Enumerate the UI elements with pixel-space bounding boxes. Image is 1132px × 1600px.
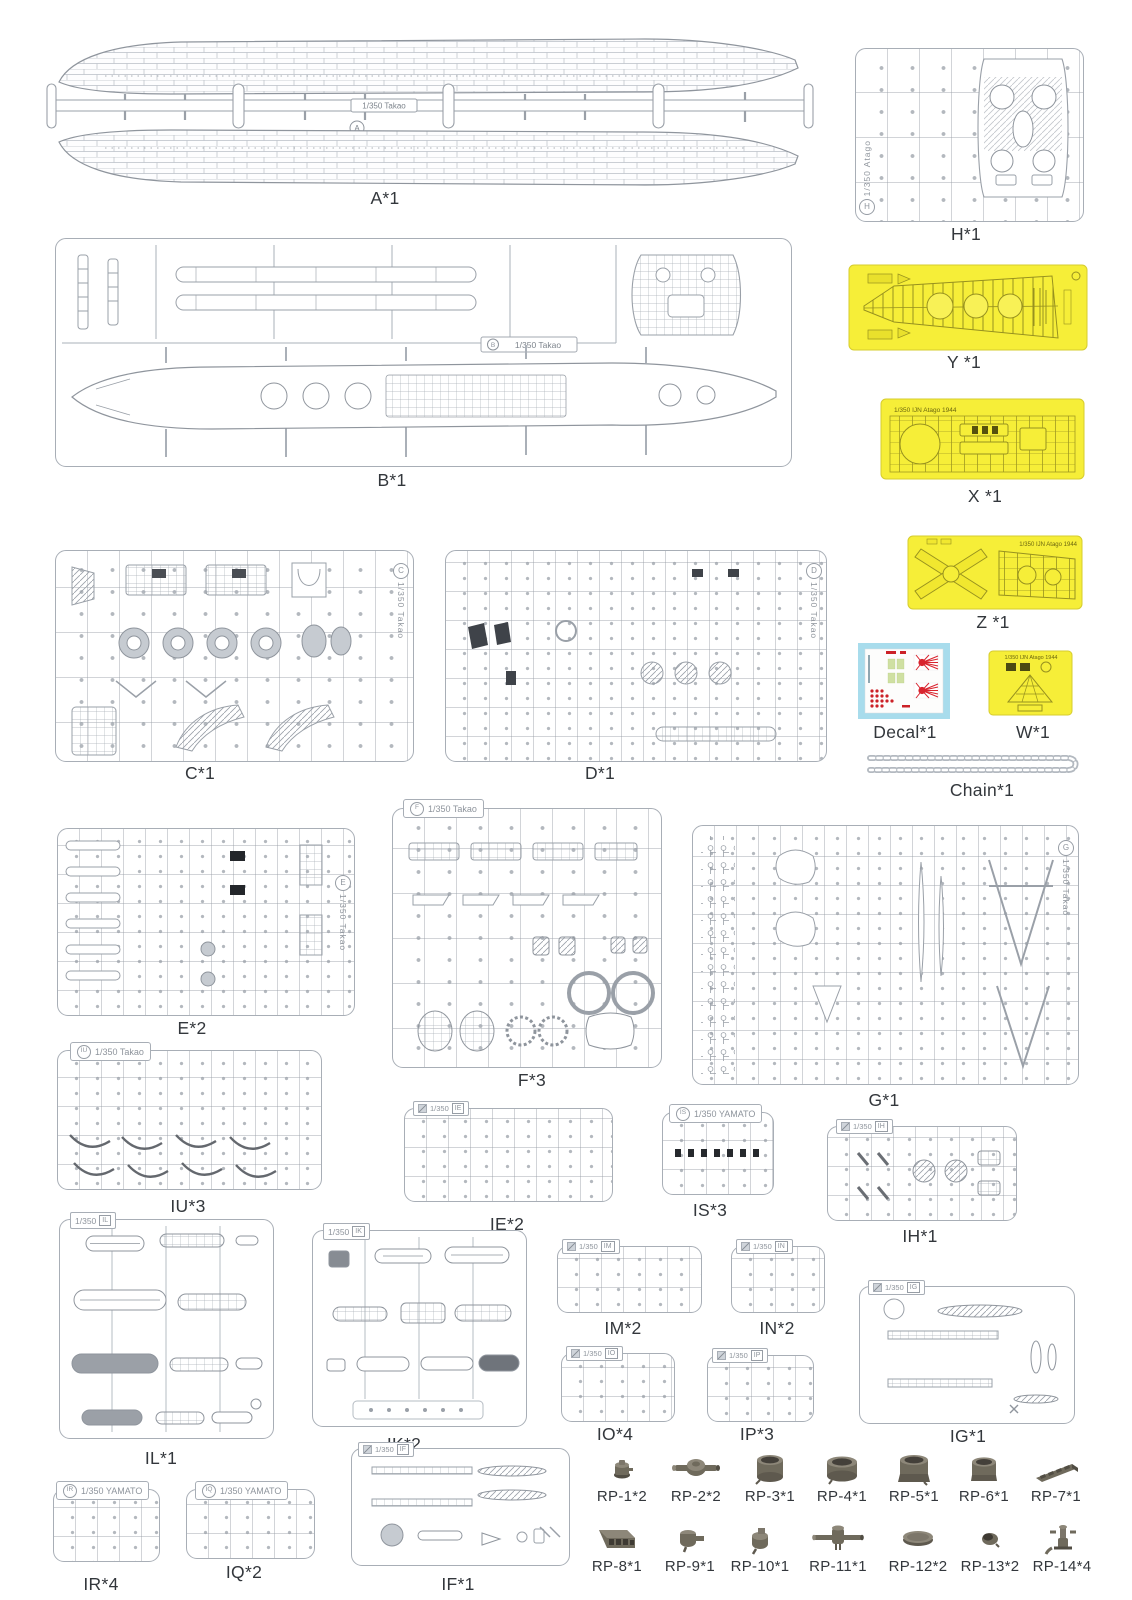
- pe-x-label: X *1: [968, 486, 1002, 507]
- sprue-h-label: H*1: [951, 224, 981, 245]
- sprue-if-label: IF*1: [441, 1574, 474, 1595]
- rp-part-1: [594, 1448, 650, 1488]
- rp-label-12: RP-12*2: [889, 1558, 948, 1575]
- pe-x-header: 1/350 IJN Atago 1944: [894, 407, 957, 414]
- rp-part-7: [1028, 1448, 1084, 1488]
- rp-part-13: [962, 1518, 1018, 1558]
- sprue-io: 1/350 IO: [561, 1353, 675, 1422]
- sprue-g: G 1/350 Takao: [692, 825, 1079, 1085]
- sprue-il: 1/350 IL: [59, 1219, 274, 1439]
- sprue-ih-tag: 1/350 IH: [836, 1119, 893, 1134]
- sprue-ih-drawing: [828, 1127, 1016, 1220]
- sprue-e-badge: E: [335, 875, 351, 891]
- sprue-if-tag: 1/350 IF: [358, 1442, 414, 1457]
- sprue-b-label: B*1: [377, 470, 406, 491]
- sprue-c-tag: C 1/350 Takao: [393, 563, 409, 639]
- sprue-ir: IR 1/350 YAMATO: [53, 1489, 160, 1562]
- sprue-c-drawing: [56, 551, 413, 761]
- pe-z-header: 1/350 IJN Atago 1944: [1019, 542, 1077, 548]
- rp-part-12: [890, 1518, 946, 1558]
- sprue-e-tag: E 1/350 Takao: [335, 875, 351, 951]
- sprue-ir-tag: IR 1/350 YAMATO: [56, 1481, 149, 1500]
- sprue-e-drawing: [58, 829, 354, 1015]
- sprue-h: 1/350 Atago H: [855, 48, 1084, 222]
- sprue-iq: IQ 1/350 YAMATO: [186, 1489, 315, 1559]
- sprue-is-drawing: [663, 1113, 773, 1194]
- sprue-ih: 1/350 IH: [827, 1126, 1017, 1221]
- sprue-h-scale-text: 1/350 Atago: [862, 140, 872, 196]
- sprue-d: D 1/350 Takao: [445, 550, 827, 762]
- sprue-in: 1/350 IN: [731, 1246, 825, 1313]
- sprue-iq-scale-text: 1/350 YAMATO: [220, 1486, 281, 1496]
- sprue-ip-label: IP*3: [740, 1424, 774, 1445]
- sprue-is-badge: IS: [676, 1107, 690, 1121]
- sprue-iu-badge: IU: [77, 1045, 91, 1059]
- sprue-in-label: IN*2: [759, 1318, 794, 1339]
- rp-label-9: RP-9*1: [665, 1558, 715, 1575]
- rp-part-3: [742, 1448, 798, 1488]
- pencil-chip-icon: [418, 1104, 427, 1113]
- sprue-a-scale-text: 1/350 Takao: [362, 102, 406, 111]
- rp-label-3: RP-3*1: [745, 1488, 795, 1505]
- sprue-b: B 1/350 Takao: [55, 238, 792, 467]
- sprue-h-tag: 1/350 Atago H: [859, 140, 875, 215]
- sprue-is-tag: IS 1/350 YAMATO: [669, 1104, 762, 1123]
- rp-part-5: [886, 1448, 942, 1488]
- sprue-h-drawing: [856, 49, 1083, 221]
- sprue-ie: 1/350 IE: [404, 1108, 613, 1202]
- sprue-ik-tag: 1/350 IK: [323, 1223, 370, 1240]
- rp-part-9: [662, 1518, 718, 1558]
- sprue-b-badge-text: B: [491, 342, 495, 349]
- sprue-io-badge: IO: [605, 1348, 618, 1359]
- sprue-f-scale-text: 1/350 Takao: [428, 804, 477, 814]
- sprue-ih-badge: IH: [875, 1121, 888, 1132]
- sprue-g-drawing: [693, 826, 1078, 1084]
- sprue-im-label: IM*2: [604, 1318, 641, 1339]
- sprue-ie-tag: 1/350 IE: [413, 1101, 469, 1116]
- sprue-if-scale-text: 1/350: [375, 1445, 394, 1454]
- rp-part-11: [810, 1518, 866, 1558]
- sprue-ir-label: IR*4: [83, 1574, 118, 1595]
- pencil-chip-icon: [571, 1349, 580, 1358]
- sprue-il-tag: 1/350 IL: [70, 1212, 116, 1229]
- sprue-iq-badge: IQ: [202, 1484, 216, 1498]
- sprue-iq-label: IQ*2: [226, 1562, 262, 1583]
- rp-label-5: RP-5*1: [889, 1488, 939, 1505]
- instruction-sheet-page: 1/350 Takao A A*1 1/350 Atago H H*1 Y *1: [0, 0, 1132, 1600]
- sprue-c: C 1/350 Takao: [55, 550, 414, 762]
- sprue-il-badge: IL: [99, 1215, 111, 1226]
- pe-y-label: Y *1: [947, 352, 981, 373]
- sprue-is-scale-text: 1/350 YAMATO: [694, 1109, 755, 1119]
- chain-drawing: [862, 750, 1088, 778]
- sprue-g-tag: G 1/350 Takao: [1058, 840, 1074, 916]
- rp-part-6: [956, 1448, 1012, 1488]
- pencil-chip-icon: [841, 1122, 850, 1131]
- sprue-iq-tag: IQ 1/350 YAMATO: [195, 1481, 288, 1500]
- sprue-is: IS 1/350 YAMATO: [662, 1112, 774, 1195]
- sprue-im-badge: IM: [601, 1241, 615, 1252]
- pe-sheet-y: [848, 264, 1088, 351]
- rp-part-14: [1034, 1518, 1090, 1558]
- sprue-iu: IU 1/350 Takao: [57, 1050, 322, 1190]
- sprue-ih-scale-text: 1/350: [853, 1122, 872, 1131]
- sprue-if-badge: IF: [397, 1444, 409, 1455]
- sprue-ie-scale-text: 1/350: [430, 1104, 449, 1113]
- sprue-c-badge: C: [393, 563, 409, 579]
- rp-part-8: [589, 1518, 645, 1558]
- sprue-ik-badge: IK: [352, 1226, 365, 1237]
- sprue-ig-drawing: [860, 1287, 1074, 1423]
- sprue-g-label: G*1: [868, 1090, 899, 1111]
- sprue-im-tag: 1/350 IM: [562, 1239, 620, 1254]
- sprue-f: F 1/350 Takao: [392, 808, 662, 1068]
- pe-w-label: W*1: [1016, 722, 1050, 743]
- sprue-ip-badge: IP: [751, 1350, 764, 1361]
- sprue-a-drawing: 1/350 Takao A: [45, 36, 815, 188]
- pencil-chip-icon: [873, 1283, 882, 1292]
- sprue-if: 1/350 IF: [351, 1448, 570, 1566]
- sprue-il-scale-text: 1/350: [75, 1216, 96, 1226]
- decal-label: Decal*1: [873, 722, 936, 743]
- chain-label: Chain*1: [950, 780, 1014, 801]
- sprue-ig: 1/350 IG: [859, 1286, 1075, 1424]
- pencil-chip-icon: [567, 1242, 576, 1251]
- sprue-io-label: IO*4: [597, 1424, 633, 1445]
- rp-label-1: RP-1*2: [597, 1488, 647, 1505]
- sprue-iu-tag: IU 1/350 Takao: [70, 1042, 151, 1061]
- sprue-e: E 1/350 Takao: [57, 828, 355, 1016]
- sprue-c-label: C*1: [185, 763, 215, 784]
- rising-sun-flag-icon: [914, 655, 938, 670]
- sprue-ig-label: IG*1: [950, 1426, 986, 1447]
- sprue-ip-scale-text: 1/350: [729, 1351, 748, 1360]
- sprue-il-drawing: [60, 1220, 273, 1438]
- sprue-h-badge: H: [859, 199, 875, 215]
- sprue-ie-badge: IE: [452, 1103, 465, 1114]
- sprue-ig-scale-text: 1/350: [885, 1283, 904, 1292]
- sprue-d-badge: D: [806, 563, 822, 579]
- rp-part-10: [732, 1518, 788, 1558]
- sprue-d-scale-text: 1/350 Takao: [809, 582, 819, 639]
- pe-sheet-x: 1/350 IJN Atago 1944: [880, 398, 1085, 480]
- rp-part-2: [668, 1448, 724, 1488]
- sprue-im-scale-text: 1/350: [579, 1242, 598, 1251]
- sprue-b-drawing: B 1/350 Takao: [56, 239, 791, 466]
- sprue-b-scale-text: 1/350 Takao: [515, 340, 561, 350]
- sprue-ik-scale-text: 1/350: [328, 1227, 349, 1237]
- rp-label-11: RP-11*1: [809, 1558, 867, 1575]
- rp-label-6: RP-6*1: [959, 1488, 1009, 1505]
- sprue-ig-tag: 1/350 IG: [868, 1280, 925, 1295]
- pe-sheet-z: 1/350 IJN Atago 1944: [907, 535, 1083, 610]
- rp-label-8: RP-8*1: [592, 1558, 642, 1575]
- sprue-f-drawing: [393, 809, 661, 1067]
- sprue-g-badge: G: [1058, 840, 1074, 856]
- pe-z-label: Z *1: [976, 612, 1009, 633]
- sprue-ir-badge: IR: [63, 1484, 77, 1498]
- pe-sheet-w: 1/350 IJN Atago 1944: [988, 650, 1073, 716]
- pe-w-header: 1/350 IJN Atago 1944: [1005, 655, 1058, 661]
- sprue-ih-label: IH*1: [902, 1226, 937, 1247]
- sprue-c-scale-text: 1/350 Takao: [396, 582, 406, 639]
- rp-label-2: RP-2*2: [671, 1488, 721, 1505]
- sprue-ip: 1/350 IP: [707, 1355, 814, 1422]
- rising-sun-flag-icon: [914, 683, 938, 698]
- sprue-f-tag: F 1/350 Takao: [403, 799, 484, 818]
- rp-label-13: RP-13*2: [961, 1558, 1020, 1575]
- rp-label-14: RP-14*4: [1033, 1558, 1092, 1575]
- sprue-ir-scale-text: 1/350 YAMATO: [81, 1486, 142, 1496]
- sprue-io-tag: 1/350 IO: [566, 1346, 623, 1361]
- sprue-il-label: IL*1: [145, 1448, 177, 1469]
- sprue-io-scale-text: 1/350: [583, 1349, 602, 1358]
- sprue-ik: 1/350 IK: [312, 1230, 527, 1427]
- sprue-g-scale-text: 1/350 Takao: [1061, 859, 1071, 916]
- sprue-d-tag: D 1/350 Takao: [806, 563, 822, 639]
- sprue-iu-scale-text: 1/350 Takao: [95, 1047, 144, 1057]
- rp-label-7: RP-7*1: [1031, 1488, 1081, 1505]
- sprue-f-badge: F: [410, 802, 424, 816]
- rp-part-4: [814, 1448, 870, 1488]
- sprue-d-drawing: [446, 551, 826, 761]
- sprue-is-label: IS*3: [693, 1200, 727, 1221]
- sprue-ik-drawing: [313, 1231, 526, 1426]
- sprue-ig-badge: IG: [907, 1282, 920, 1293]
- pencil-chip-icon: [741, 1242, 750, 1251]
- sprue-in-scale-text: 1/350: [753, 1242, 772, 1251]
- sprue-d-label: D*1: [585, 763, 615, 784]
- sprue-iu-label: IU*3: [170, 1196, 205, 1217]
- sprue-in-tag: 1/350 IN: [736, 1239, 793, 1254]
- sprue-in-badge: IN: [775, 1241, 788, 1252]
- sprue-im: 1/350 IM: [557, 1246, 702, 1313]
- decal-sheet: [858, 643, 950, 719]
- sprue-iu-drawing: [58, 1051, 321, 1189]
- pencil-chip-icon: [717, 1351, 726, 1360]
- sprue-f-label: F*3: [518, 1070, 546, 1091]
- sprue-a-label: A*1: [370, 188, 399, 209]
- sprue-e-scale-text: 1/350 Takao: [338, 894, 348, 951]
- sprue-e-label: E*2: [177, 1018, 206, 1039]
- rp-label-10: RP-10*1: [731, 1558, 790, 1575]
- rp-label-4: RP-4*1: [817, 1488, 867, 1505]
- sprue-ip-tag: 1/350 IP: [712, 1348, 768, 1363]
- sprue-if-drawing: [352, 1449, 569, 1565]
- pencil-chip-icon: [363, 1445, 372, 1454]
